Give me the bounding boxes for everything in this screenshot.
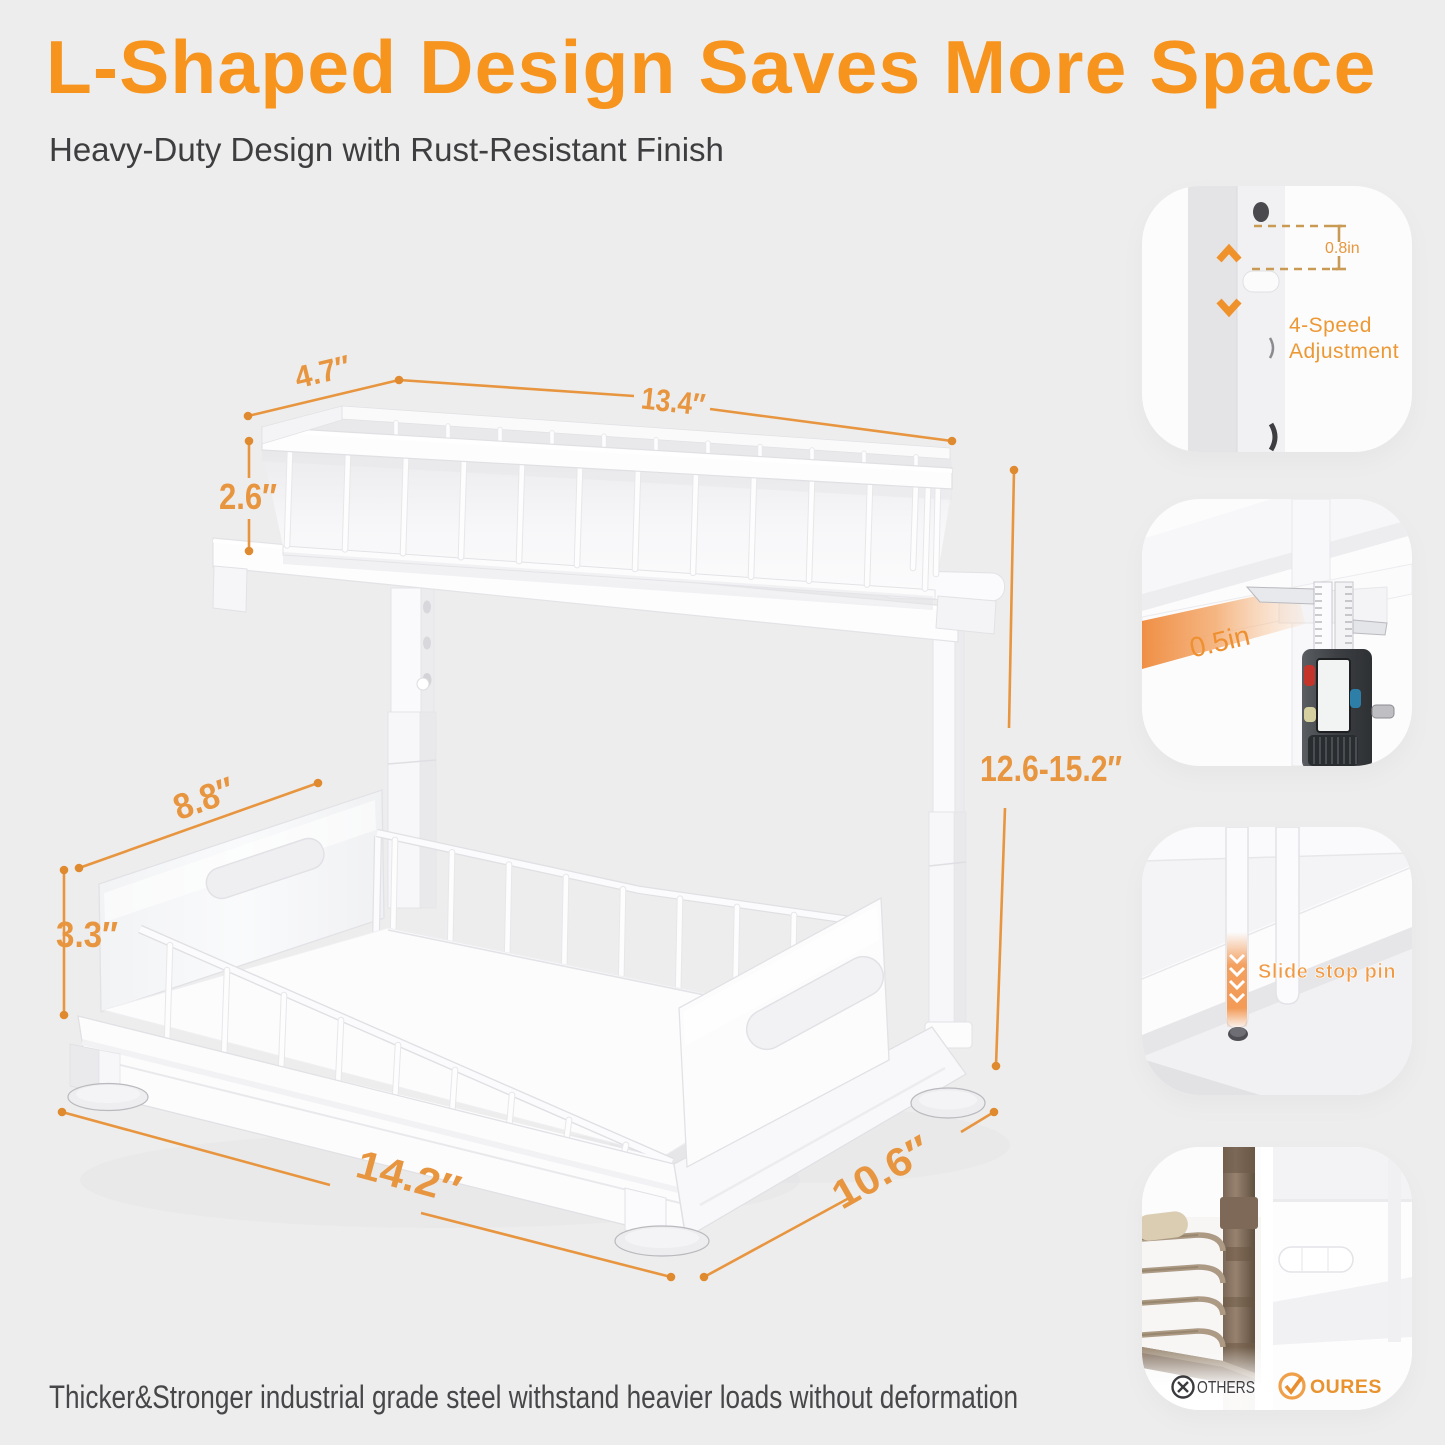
svg-text:OTHERS: OTHERS xyxy=(1197,1377,1255,1397)
svg-text:3.3″: 3.3″ xyxy=(56,914,118,955)
svg-text:12.6-15.2″: 12.6-15.2″ xyxy=(980,748,1122,789)
svg-text:Slide stop pin: Slide stop pin xyxy=(1258,961,1396,983)
svg-text:2.6″: 2.6″ xyxy=(219,476,277,517)
svg-text:0.8in: 0.8in xyxy=(1325,240,1360,257)
svg-text:Adjustment: Adjustment xyxy=(1289,340,1399,363)
svg-text:4-Speed: 4-Speed xyxy=(1289,314,1372,337)
svg-text:OURES: OURES xyxy=(1310,1376,1382,1398)
svg-text:4.7″: 4.7″ xyxy=(291,348,354,395)
svg-text:13.4″: 13.4″ xyxy=(639,381,707,423)
svg-text:8.8″: 8.8″ xyxy=(168,769,240,828)
